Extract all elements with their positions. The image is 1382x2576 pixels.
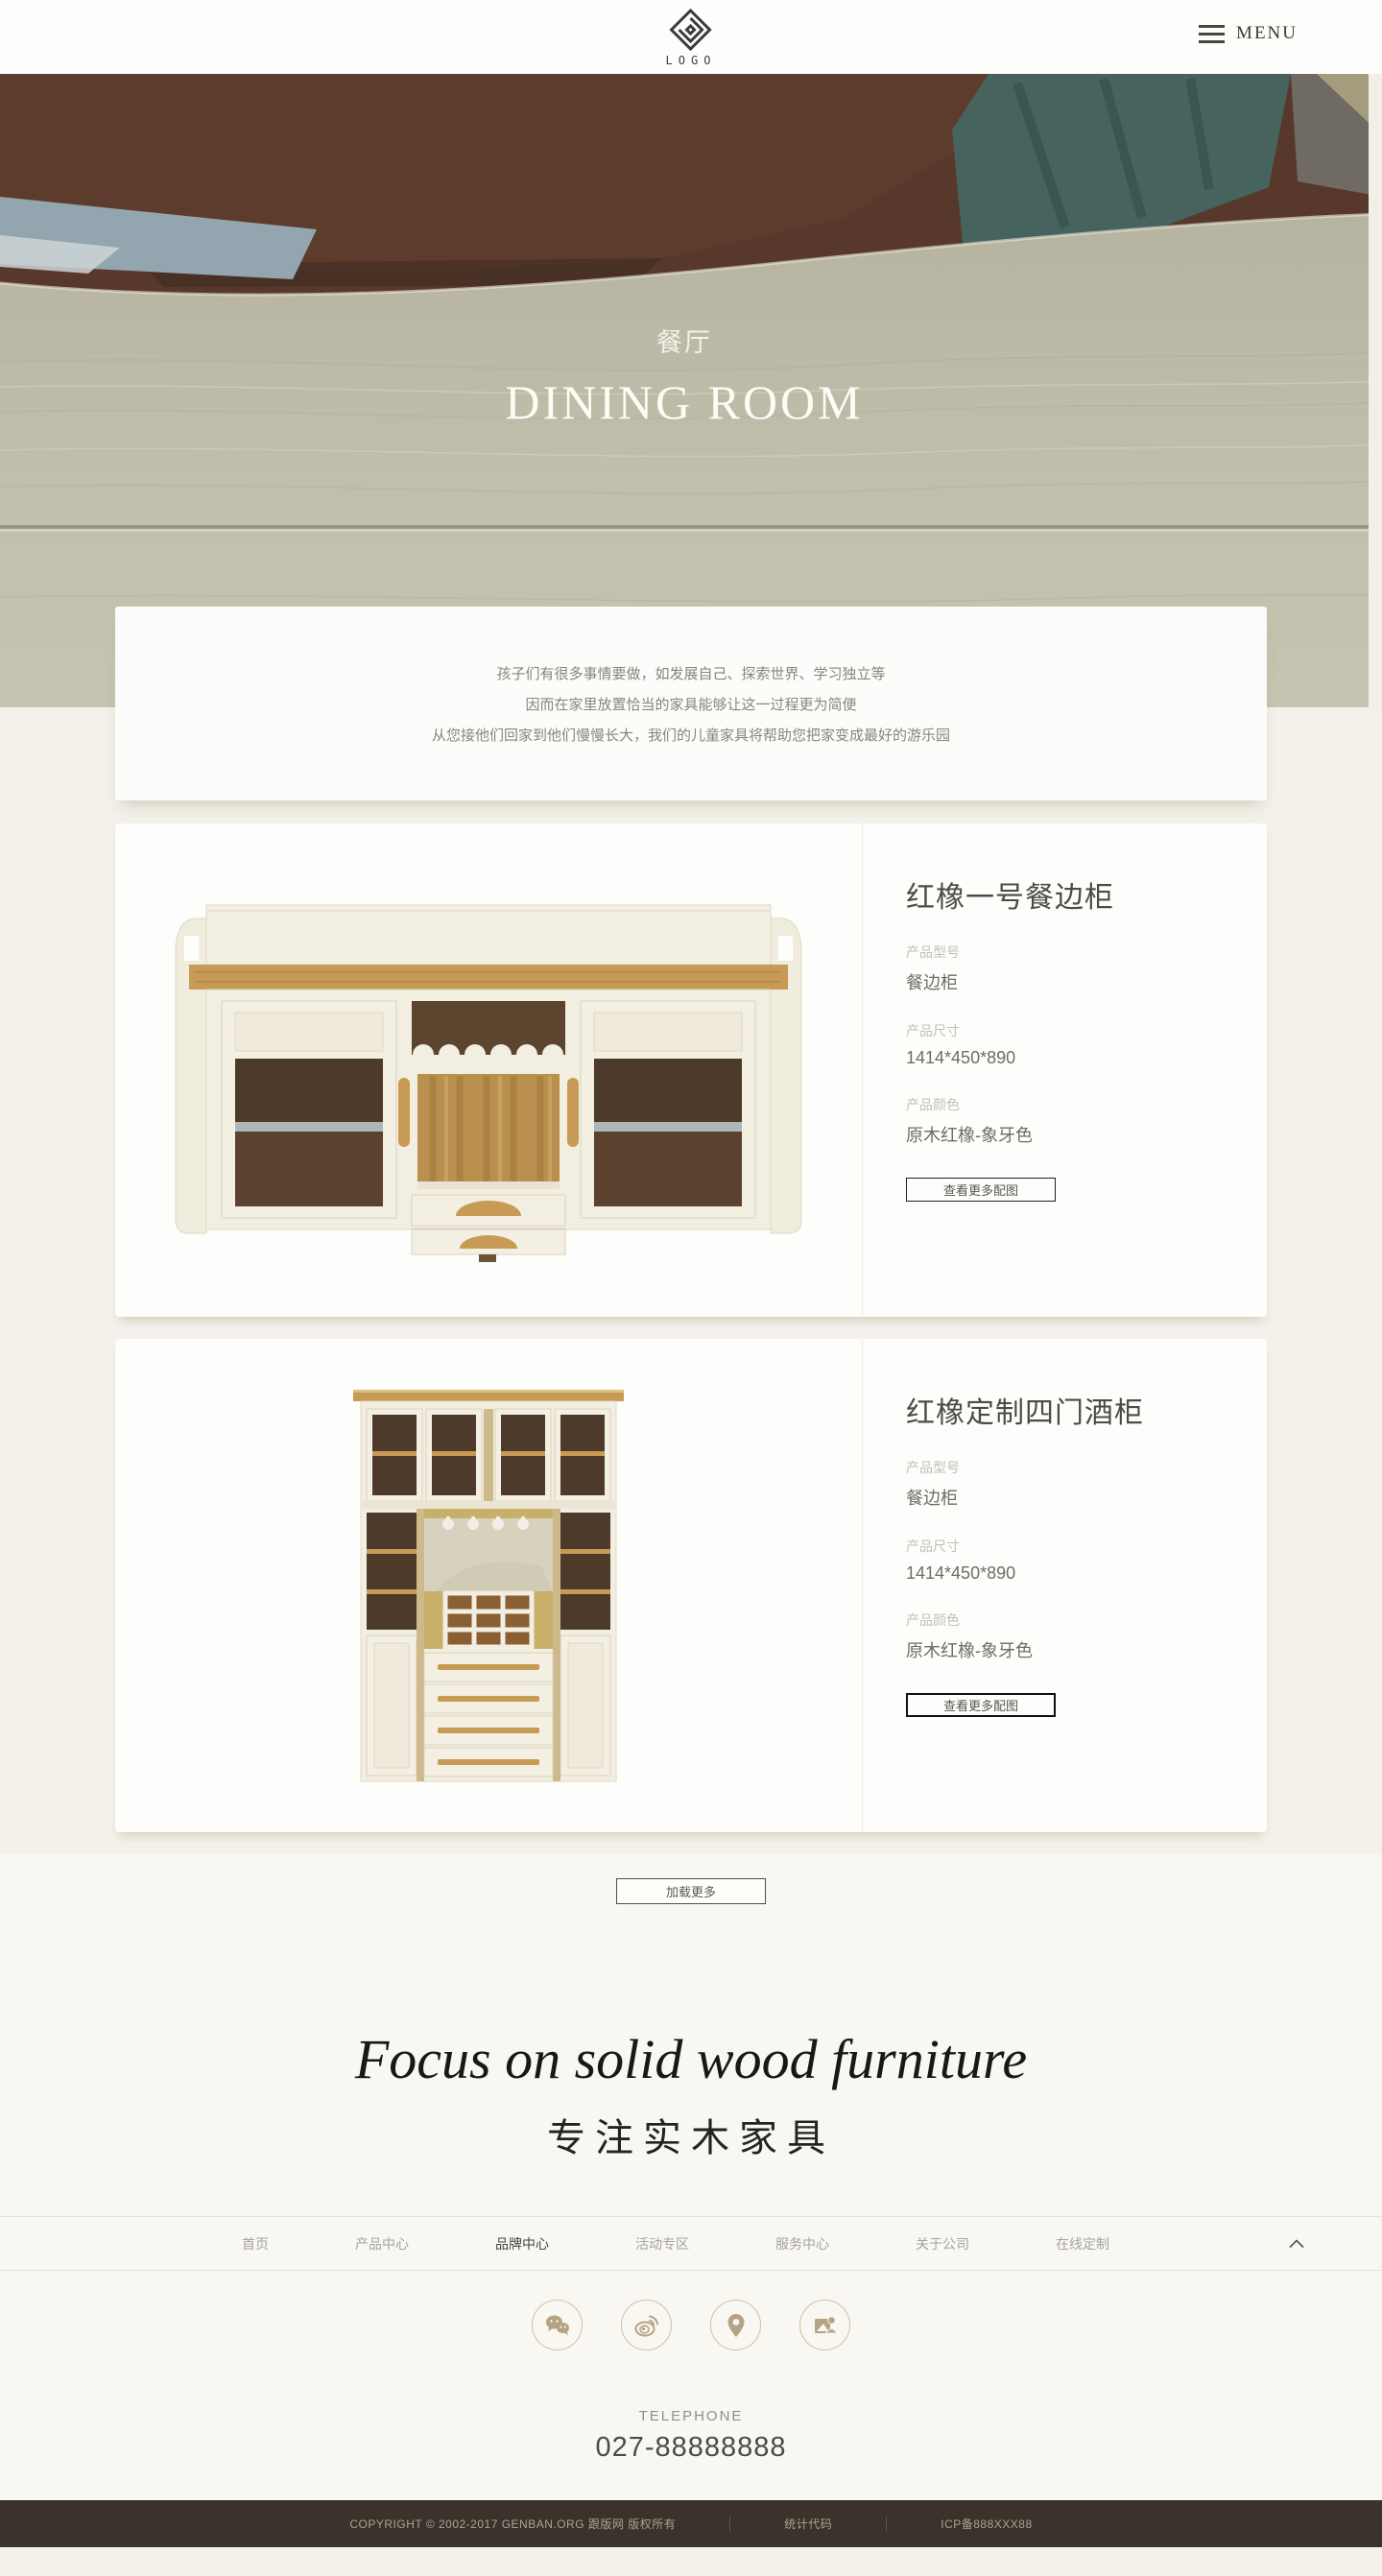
product-title[interactable]: 红橡一号餐边柜 (906, 873, 1238, 916)
menu-button[interactable]: MENU (1199, 23, 1298, 44)
hamburger-icon (1199, 25, 1225, 43)
product-title[interactable]: 红橡定制四门酒柜 (906, 1389, 1238, 1431)
load-more-button[interactable]: 加载更多 (616, 1878, 766, 1904)
location-button[interactable] (710, 2300, 761, 2350)
hero-titles: 餐厅 DINING ROOM (0, 322, 1369, 430)
scrollbar-track[interactable] (1369, 74, 1382, 707)
product-model-field: 产品型号 餐边柜 (906, 1458, 1238, 1510)
location-pin-icon (724, 2312, 749, 2339)
slogan-cn: 专注实木家具 (0, 2107, 1382, 2162)
chevron-up-icon (1288, 2239, 1305, 2249)
logo-diamond-icon (669, 8, 713, 52)
page: LOGO MENU (0, 0, 1382, 2576)
field-value: 餐边柜 (906, 969, 1238, 994)
product-size-field: 产品尺寸 1414*450*890 (906, 1537, 1238, 1584)
footer-divider (729, 2516, 730, 2532)
product-card-sideboard: 红橡一号餐边柜 产品型号 餐边柜 产品尺寸 1414*450*890 产品颜色 … (115, 823, 1267, 1317)
header: LOGO MENU (0, 0, 1382, 74)
product-card-wine-cabinet: 红橡定制四门酒柜 产品型号 餐边柜 产品尺寸 1414*450*890 产品颜色… (115, 1339, 1267, 1832)
intro-line: 因而在家里放置恰当的家具能够让这一过程更为简便 (525, 694, 856, 714)
menu-label: MENU (1236, 23, 1298, 44)
nav-link-home[interactable]: 首页 (242, 2234, 269, 2254)
field-value: 1414*450*890 (906, 1048, 1238, 1068)
view-more-images-button[interactable]: 查看更多配图 (906, 1178, 1056, 1202)
field-value: 1414*450*890 (906, 1563, 1238, 1584)
field-label: 产品颜色 (906, 1095, 1238, 1114)
product-color-field: 产品颜色 原木红橡-象牙色 (906, 1095, 1238, 1147)
nav-link-activities[interactable]: 活动专区 (635, 2234, 689, 2254)
product-image[interactable] (115, 823, 863, 1317)
contact-person-icon (812, 2313, 839, 2338)
field-label: 产品尺寸 (906, 1021, 1238, 1040)
stat-code-link[interactable]: 统计代码 (784, 2516, 832, 2532)
product-list: 红橡一号餐边柜 产品型号 餐边柜 产品尺寸 1414*450*890 产品颜色 … (0, 800, 1382, 1832)
weibo-icon (633, 2313, 660, 2338)
footer-bar: COPYRIGHT © 2002-2017 GENBAN.ORG 跟版网 版权所… (0, 2500, 1382, 2547)
sideboard-image (166, 878, 811, 1262)
product-color-field: 产品颜色 原木红橡-象牙色 (906, 1610, 1238, 1662)
field-value: 餐边柜 (906, 1485, 1238, 1510)
weibo-button[interactable] (621, 2300, 672, 2350)
icp-link[interactable]: ICP备888XXX88 (941, 2516, 1032, 2532)
main-content: 孩子们有很多事情要做，如发展自己、探索世界、学习独立等 因而在家里放置恰当的家具… (0, 607, 1382, 1853)
intro-line: 从您接他们回家到他们慢慢长大，我们的儿童家具将帮助您把家变成最好的游乐园 (432, 725, 950, 745)
social-row (0, 2300, 1382, 2350)
field-label: 产品型号 (906, 942, 1238, 962)
view-more-images-button[interactable]: 查看更多配图 (906, 1693, 1056, 1717)
footer-divider (886, 2516, 887, 2532)
nav-link-custom[interactable]: 在线定制 (1056, 2234, 1109, 2254)
field-label: 产品型号 (906, 1458, 1238, 1477)
product-info: 红橡一号餐边柜 产品型号 餐边柜 产品尺寸 1414*450*890 产品颜色 … (863, 823, 1267, 1317)
intro-card: 孩子们有很多事情要做，如发展自己、探索世界、学习独立等 因而在家里放置恰当的家具… (115, 607, 1267, 800)
lower-section: 加载更多 Focus on solid wood furniture 专注实木家… (0, 1853, 1382, 2500)
contact-button[interactable] (799, 2300, 850, 2350)
intro-line: 孩子们有很多事情要做，如发展自己、探索世界、学习独立等 (496, 663, 885, 683)
product-size-field: 产品尺寸 1414*450*890 (906, 1021, 1238, 1068)
slogan-en: Focus on solid wood furniture (0, 2027, 1382, 2091)
nav-link-brand[interactable]: 品牌中心 (495, 2234, 549, 2254)
footer-nav-links: 首页 产品中心 品牌中心 活动专区 服务中心 关于公司 在线定制 (242, 2234, 1109, 2254)
nav-link-service[interactable]: 服务中心 (775, 2234, 829, 2254)
copyright-text: COPYRIGHT © 2002-2017 GENBAN.ORG 跟版网 版权所… (349, 2516, 676, 2532)
product-image[interactable] (115, 1339, 863, 1832)
logo[interactable]: LOGO (666, 8, 717, 67)
product-info: 红橡定制四门酒柜 产品型号 餐边柜 产品尺寸 1414*450*890 产品颜色… (863, 1339, 1267, 1832)
telephone-label: TELEPHONE (0, 2408, 1382, 2424)
nav-link-products[interactable]: 产品中心 (355, 2234, 409, 2254)
logo-text: LOGO (666, 54, 717, 67)
telephone-number: 027-88888888 (0, 2432, 1382, 2464)
telephone-block: TELEPHONE 027-88888888 (0, 2408, 1382, 2464)
back-to-top-button[interactable] (1288, 2239, 1305, 2249)
nav-link-about[interactable]: 关于公司 (916, 2234, 969, 2254)
product-model-field: 产品型号 餐边柜 (906, 942, 1238, 994)
hero-title-cn: 餐厅 (0, 322, 1369, 359)
hero-title-en: DINING ROOM (0, 374, 1369, 430)
footer-nav: 首页 产品中心 品牌中心 活动专区 服务中心 关于公司 在线定制 (0, 2216, 1382, 2271)
wechat-button[interactable] (532, 2300, 583, 2350)
field-value: 原木红橡-象牙色 (906, 1637, 1238, 1662)
wechat-icon (544, 2313, 571, 2338)
field-label: 产品颜色 (906, 1610, 1238, 1630)
wine-cabinet-image (349, 1384, 628, 1787)
field-value: 原木红橡-象牙色 (906, 1122, 1238, 1147)
field-label: 产品尺寸 (906, 1537, 1238, 1556)
